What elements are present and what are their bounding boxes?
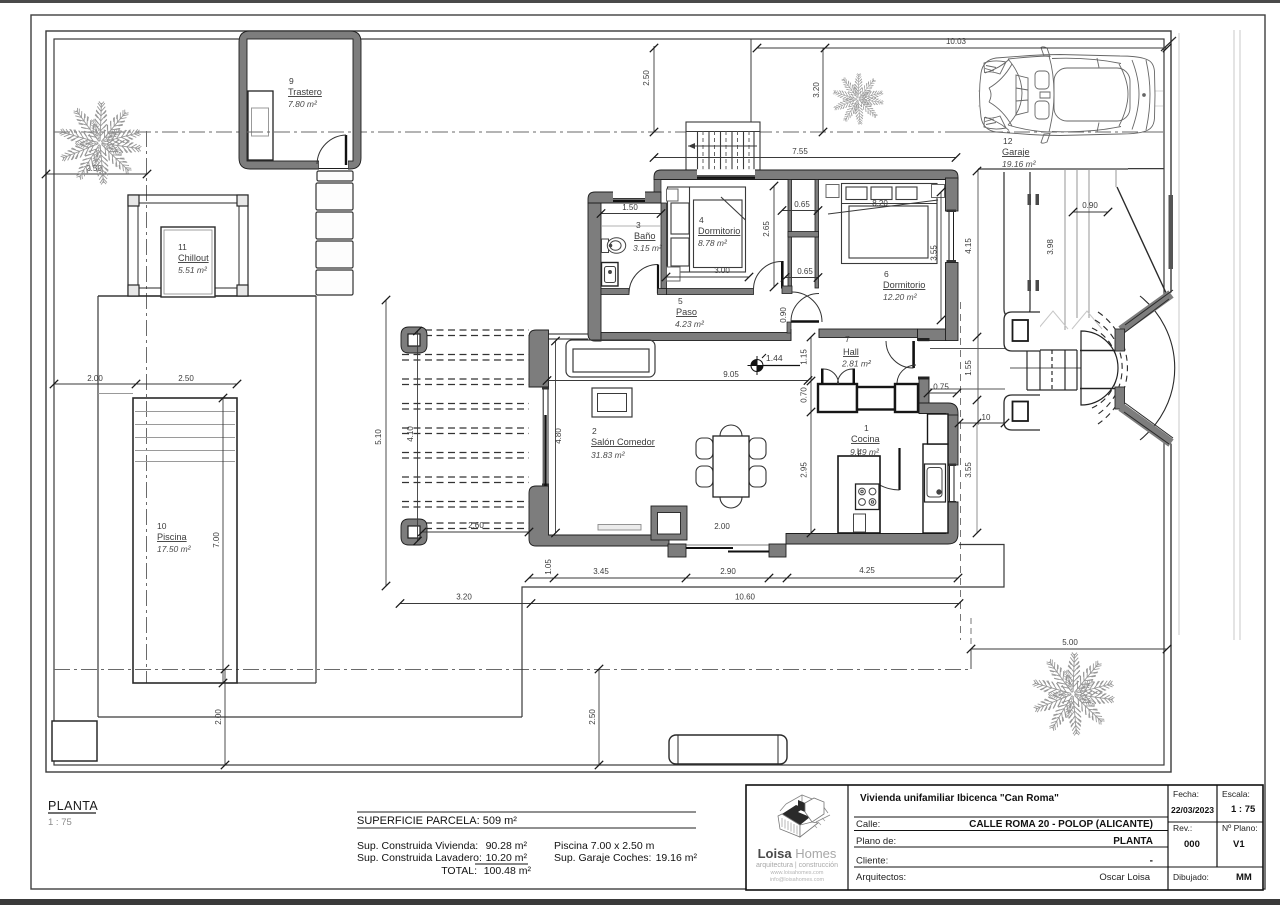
svg-text:6: 6 <box>884 269 889 279</box>
svg-text:3.55: 3.55 <box>930 245 939 261</box>
svg-text:3.15 m²: 3.15 m² <box>633 243 663 253</box>
svg-text:9: 9 <box>289 76 294 86</box>
svg-text:2.95: 2.95 <box>800 462 809 478</box>
svg-text:3.45: 3.45 <box>593 567 609 576</box>
svg-text:1.05: 1.05 <box>544 559 553 575</box>
svg-text:Escala:: Escala: <box>1222 789 1250 799</box>
svg-text:19.16 m²: 19.16 m² <box>656 852 698 864</box>
svg-text:Hall: Hall <box>843 347 859 357</box>
svg-text:3: 3 <box>636 220 641 230</box>
svg-text:Salón Comedor: Salón Comedor <box>591 437 655 447</box>
svg-text:2.00: 2.00 <box>214 709 223 725</box>
svg-text:10: 10 <box>157 521 167 531</box>
svg-text:V1: V1 <box>1233 839 1245 850</box>
svg-text:CALLE ROMA 20 - POLOP (ALICANT: CALLE ROMA 20 - POLOP (ALICANTE) <box>969 819 1153 830</box>
svg-text:Baño: Baño <box>634 231 655 241</box>
svg-text:3.20: 3.20 <box>812 82 821 98</box>
svg-text:4: 4 <box>699 215 704 225</box>
svg-text:5.51 m²: 5.51 m² <box>178 265 208 275</box>
svg-text:4.80: 4.80 <box>554 428 563 444</box>
svg-text:4.10: 4.10 <box>406 426 415 442</box>
svg-text:2.90: 2.90 <box>720 567 736 576</box>
svg-text:Dormitorio: Dormitorio <box>698 226 740 236</box>
svg-text:3.98: 3.98 <box>1046 239 1055 255</box>
svg-text:22/03/2023: 22/03/2023 <box>1171 805 1214 815</box>
svg-text:Vivienda unifamiliar Ibicenca: Vivienda unifamiliar Ibicenca "Can Roma" <box>860 793 1059 804</box>
svg-text:4.15: 4.15 <box>964 238 973 254</box>
svg-text:0.65: 0.65 <box>797 267 813 276</box>
svg-text:Nº Plano:: Nº Plano: <box>1222 823 1258 833</box>
svg-text:7.80 m²: 7.80 m² <box>288 99 318 109</box>
svg-text:9.05: 9.05 <box>723 370 739 379</box>
svg-text:info@loisahomes.com: info@loisahomes.com <box>770 877 825 883</box>
svg-text:31.83 m²: 31.83 m² <box>591 450 626 460</box>
svg-text:000: 000 <box>1184 839 1200 850</box>
svg-text:Oscar Loisa: Oscar Loisa <box>1099 872 1150 883</box>
svg-text:SUPERFICIE PARCELA: 509 m²: SUPERFICIE PARCELA: 509 m² <box>357 815 517 827</box>
svg-text:8.78 m²: 8.78 m² <box>698 238 728 248</box>
svg-text:3.20: 3.20 <box>456 593 472 602</box>
svg-text:2.50: 2.50 <box>588 709 597 725</box>
svg-text:1.44: 1.44 <box>766 353 783 363</box>
svg-text:Trastero: Trastero <box>288 87 322 97</box>
svg-text:0.70: 0.70 <box>800 387 809 403</box>
svg-text:TOTAL:: TOTAL: <box>441 865 477 877</box>
svg-text:1: 1 <box>864 423 869 433</box>
svg-text:4.25: 4.25 <box>859 566 875 575</box>
svg-text:2.00: 2.00 <box>714 522 730 531</box>
svg-text:2.50: 2.50 <box>178 374 194 383</box>
svg-text:7.00: 7.00 <box>212 532 221 548</box>
svg-text:Garaje: Garaje <box>1002 147 1030 157</box>
svg-text:0.90: 0.90 <box>1082 201 1098 210</box>
svg-text:2.50: 2.50 <box>642 70 651 86</box>
svg-text:Dibujado:: Dibujado: <box>1173 872 1209 882</box>
svg-text:Paso: Paso <box>676 307 697 317</box>
svg-text:1.50: 1.50 <box>622 203 638 212</box>
svg-text:5.10: 5.10 <box>374 429 383 445</box>
svg-text:19.16 m²: 19.16 m² <box>1002 159 1037 169</box>
svg-text:2.60: 2.60 <box>468 521 484 530</box>
svg-text:Sup. Construida Vivienda:: Sup. Construida Vivienda: <box>357 840 478 852</box>
svg-text:Fecha:: Fecha: <box>1173 789 1199 799</box>
svg-text:10.60: 10.60 <box>735 593 756 602</box>
svg-text:2.65: 2.65 <box>762 221 771 237</box>
svg-text:MM: MM <box>1236 872 1252 883</box>
svg-text:Cliente:: Cliente: <box>856 856 888 867</box>
svg-text:17.50 m²: 17.50 m² <box>157 544 192 554</box>
svg-text:Loisa Homes: Loisa Homes <box>758 846 837 861</box>
svg-text:1.15: 1.15 <box>800 349 809 365</box>
svg-text:www.loisahomes.com: www.loisahomes.com <box>770 870 824 876</box>
svg-text:1 : 75: 1 : 75 <box>1231 804 1256 815</box>
svg-text:PLANTA: PLANTA <box>48 799 98 813</box>
svg-text:3.00: 3.00 <box>714 266 730 275</box>
svg-text:11: 11 <box>178 242 187 252</box>
svg-text:0.75: 0.75 <box>933 383 949 392</box>
svg-text:Piscina: Piscina <box>157 532 188 542</box>
svg-text:3.55: 3.55 <box>964 462 973 478</box>
svg-text:7.55: 7.55 <box>792 147 808 156</box>
svg-text:90.28 m²: 90.28 m² <box>486 840 528 852</box>
svg-text:Dormitorio: Dormitorio <box>883 280 925 290</box>
svg-text:-: - <box>1150 856 1153 867</box>
svg-text:2.00: 2.00 <box>87 374 103 383</box>
svg-text:Arquitectos:: Arquitectos: <box>856 872 906 883</box>
svg-text:7: 7 <box>845 334 850 344</box>
svg-text:Chillout: Chillout <box>178 253 209 263</box>
svg-text:Rev.:: Rev.: <box>1173 823 1192 833</box>
svg-text:10: 10 <box>982 413 991 422</box>
svg-text:PLANTA: PLANTA <box>1113 836 1153 847</box>
svg-text:10.20 m²: 10.20 m² <box>486 852 528 864</box>
svg-text:Sup. Garaje Coches:: Sup. Garaje Coches: <box>554 852 651 864</box>
svg-text:2: 2 <box>592 426 597 436</box>
svg-text:Sup. Construida Lavadero:: Sup. Construida Lavadero: <box>357 852 482 864</box>
svg-text:5.00: 5.00 <box>1062 638 1078 647</box>
svg-text:12.20 m²: 12.20 m² <box>883 292 918 302</box>
svg-text:Plano de:: Plano de: <box>856 836 896 847</box>
svg-text:8.20: 8.20 <box>872 199 888 208</box>
svg-text:10.03: 10.03 <box>946 37 967 46</box>
svg-text:1.55: 1.55 <box>964 360 973 376</box>
svg-text:100.48 m²: 100.48 m² <box>484 865 532 877</box>
svg-text:Calle:: Calle: <box>856 819 880 830</box>
svg-text:arquitectura | construcción: arquitectura | construcción <box>756 862 838 869</box>
svg-text:0.90: 0.90 <box>779 307 788 323</box>
svg-text:1 : 75: 1 : 75 <box>48 817 72 828</box>
svg-text:0.65: 0.65 <box>794 200 810 209</box>
svg-text:4.23 m²: 4.23 m² <box>675 319 705 329</box>
svg-text:Piscina 7.00 x 2.50 m: Piscina 7.00 x 2.50 m <box>554 840 655 852</box>
svg-text:9.49 m²: 9.49 m² <box>850 447 880 457</box>
svg-text:Cocina: Cocina <box>851 434 880 444</box>
svg-text:2.81 m²: 2.81 m² <box>841 359 872 369</box>
svg-text:5: 5 <box>678 296 683 306</box>
svg-text:12: 12 <box>1003 136 1013 146</box>
